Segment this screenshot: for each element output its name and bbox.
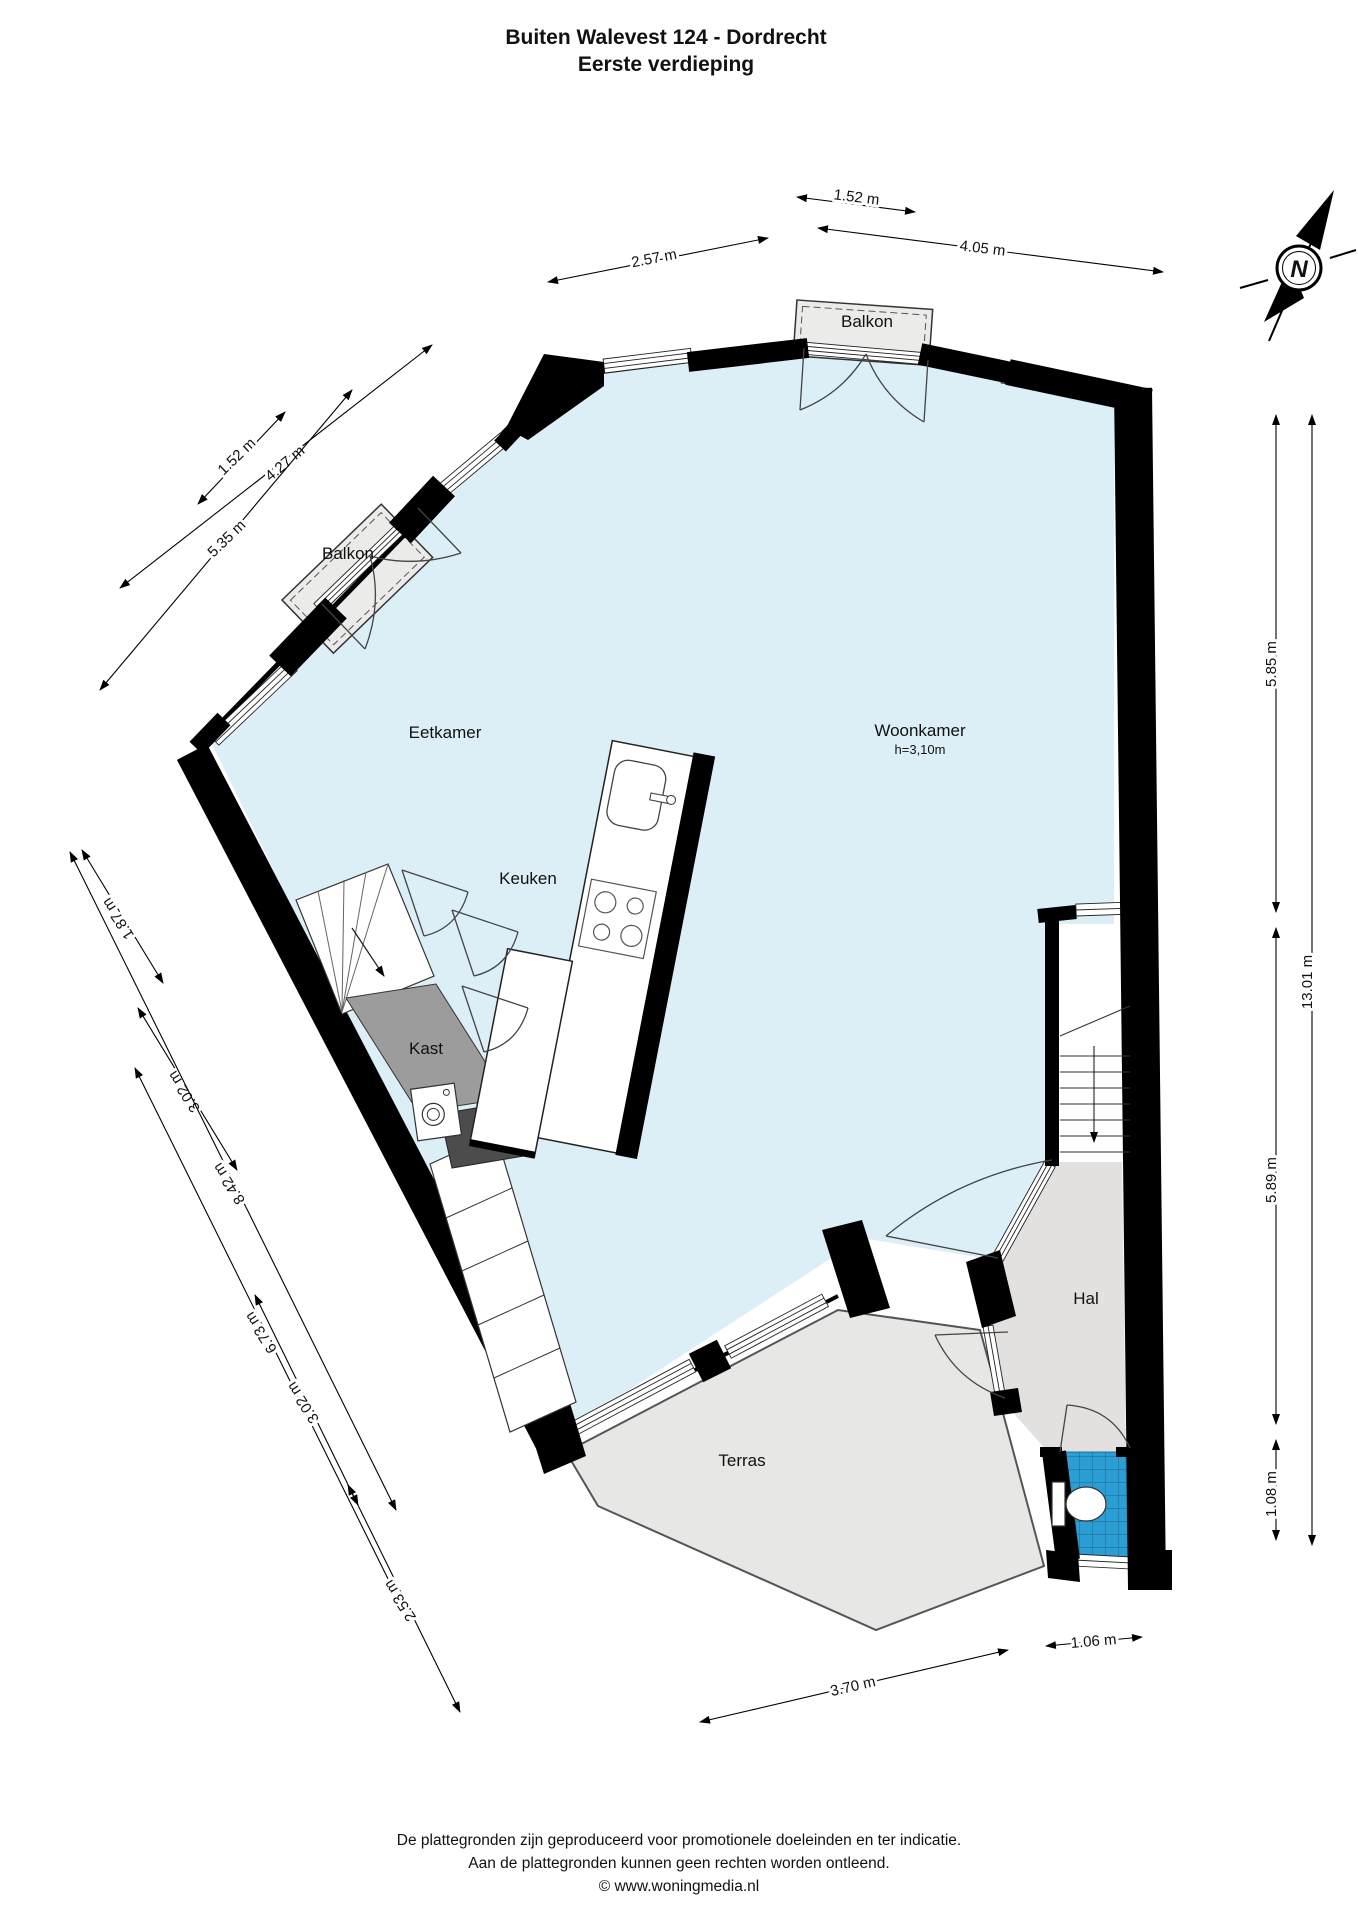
page-title: Buiten Walevest 124 - Dordrecht [505,26,826,49]
dimension-label-sw-253: 2.53 m [381,1577,420,1625]
window-toilet [1074,1554,1131,1569]
footer-line-3: © www.woningmedia.nl [599,1878,759,1895]
compass-north-label: N [1290,256,1308,283]
room-label-woonkamer: Woonkamer [874,721,966,740]
compass-icon: N [1240,190,1356,341]
dimension-label-sw-302-lower: 3.02 m [284,1379,323,1427]
dimension-label-right-108: 1.08 m [1263,1471,1280,1517]
footer-disclaimer: De plattegronden zijn geproduceerd voor … [397,1832,961,1895]
washer-icon [411,1083,462,1141]
dimension-label-bottom-370: 3.70 m [829,1673,878,1700]
footer-line-1: De plattegronden zijn geproduceerd voor … [397,1832,961,1849]
room-label-balkon-left: Balkon [322,544,374,563]
window-stairwell [1076,902,1124,916]
floorplan-svg: Buiten Walevest 124 - Dordrecht Eerste v… [0,0,1358,1920]
dimension-label-sw-302-upper: 3.02 m [165,1068,204,1116]
room-label-woonkamer-height: h=3,10m [895,742,946,757]
room-label-terras: Terras [718,1451,765,1470]
page-subtitle: Eerste verdieping [578,53,754,76]
room-label-balkon-top: Balkon [841,312,893,331]
room-label-hal: Hal [1073,1289,1099,1308]
dimension-label-right-1301: 13.01 m [1299,955,1316,1009]
stove-icon [579,879,657,958]
dimension-label-bottom-106: 1.06 m [1070,1631,1117,1652]
dimension-label-nw-427: 4.27 m [262,442,308,485]
dimension-label-sw-842: 8.42 m [210,1160,249,1208]
dimension-label-nw-535: 5.35 m [204,517,249,561]
floorplan-page: Buiten Walevest 124 - Dordrecht Eerste v… [0,0,1358,1920]
room-label-eetkamer: Eetkamer [409,723,482,742]
dimension-label-sw-187: 1.87 m [99,895,138,943]
room-label-keuken: Keuken [499,869,557,888]
dimension-label-top-152: 1.52 m [833,186,881,208]
footer-line-2: Aan de plattegronden kunnen geen rechten… [468,1855,889,1872]
room-label-kast: Kast [409,1039,443,1058]
dimension-label-nw-152: 1.52 m [214,435,259,479]
dimension-label-sw-673: 6.73 m [242,1309,281,1357]
dimension-label-top-257: 2.57 m [630,246,678,271]
stairwell-area [1059,924,1121,1162]
dimension-label-right-585: 5.85 m [1263,641,1280,687]
dimension-label-right-589: 5.89 m [1263,1157,1280,1203]
dimension-label-top-405: 4.05 m [959,237,1007,259]
